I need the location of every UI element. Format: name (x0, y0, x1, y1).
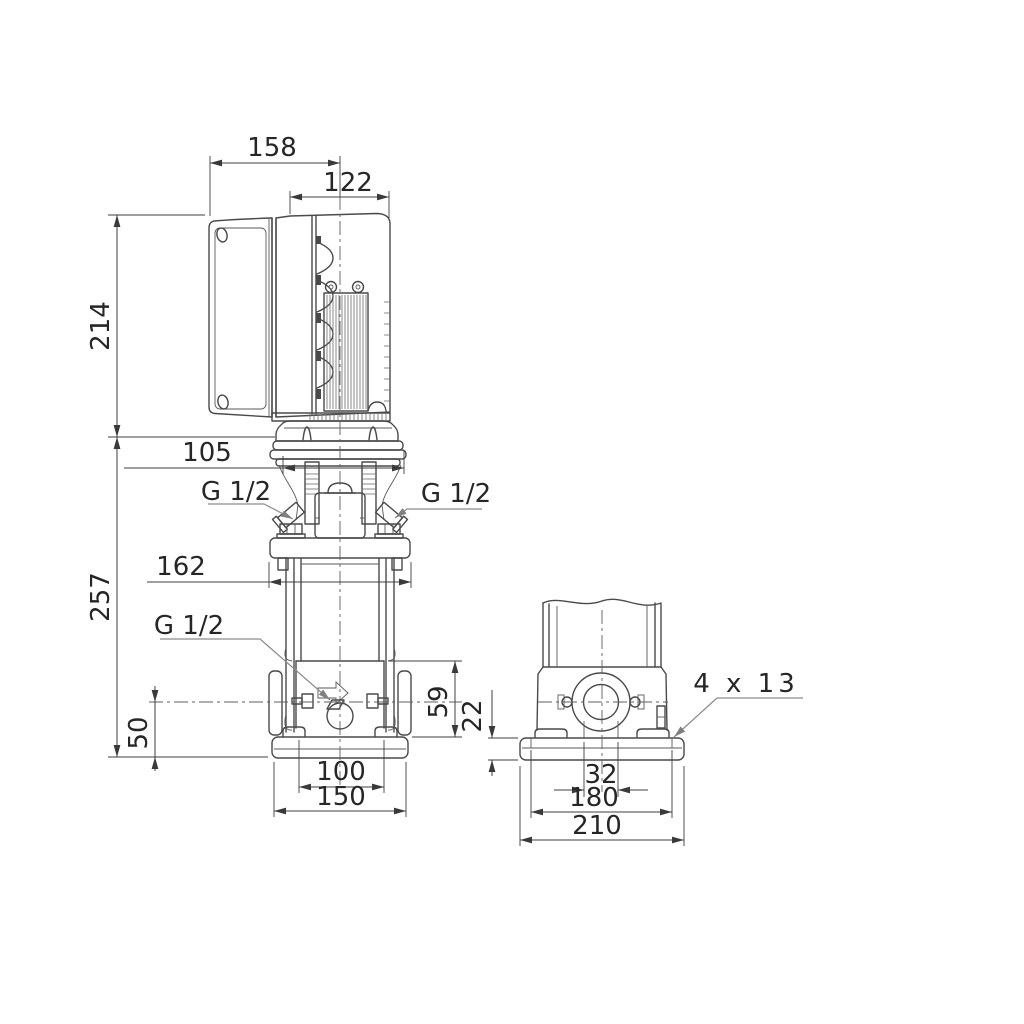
side-clip (657, 706, 665, 728)
staybolt-nut-left (277, 524, 305, 538)
plug-right-label: G 1/2 (421, 479, 491, 509)
dimension-50: 50 (124, 686, 155, 771)
dim-label-180: 180 (569, 783, 619, 813)
heatsink-fins (324, 293, 368, 411)
pump-dimensional-drawing-page: 158 122 214 257 105 162 50 (0, 0, 1024, 1024)
motor-rib-ticks (384, 302, 390, 401)
discharge-port-flange (398, 671, 411, 735)
dimension-122: 122 (290, 168, 389, 218)
priming-plug-right (374, 501, 407, 533)
dim-label-257: 257 (86, 572, 116, 622)
dim-label-122: 122 (323, 168, 373, 198)
drain-callout: G 1/2 (154, 611, 330, 700)
dim-label-150: 150 (316, 782, 366, 812)
gauge-plug-right (367, 694, 388, 708)
bolt-holes-label: 4 x 13 (693, 669, 799, 699)
staybolt-nut-right (375, 524, 403, 538)
stool-clip-icon (369, 427, 377, 440)
stool-clip-icon (303, 427, 311, 440)
dim-label-59: 59 (424, 685, 454, 718)
dimension-158: 158 (210, 133, 340, 216)
break-line (543, 599, 661, 605)
motor-stool (270, 421, 406, 466)
dim-label-158: 158 (247, 133, 297, 163)
dim-label-105: 105 (182, 438, 232, 468)
cable-entry-arc (368, 402, 386, 411)
motor-body (272, 214, 390, 422)
dim-label-214: 214 (86, 301, 116, 351)
dimension-214: 214 (86, 215, 275, 437)
dim-label-162: 162 (156, 552, 206, 582)
staybolt-threads (305, 474, 376, 494)
gauge-plug-left (292, 694, 313, 708)
dim-label-22: 22 (458, 699, 488, 732)
dim-label-50: 50 (124, 716, 154, 749)
control-box (209, 218, 276, 417)
dim-label-210: 210 (572, 811, 622, 841)
plug-callout-left: G 1/2 (201, 477, 293, 519)
bolt-holes-callout: 4 x 13 (674, 669, 803, 737)
drain-label: G 1/2 (154, 611, 224, 641)
suction-port-flange (269, 671, 282, 735)
dimensional-drawing: 158 122 214 257 105 162 50 (0, 0, 1024, 1024)
plug-callout-right: G 1/2 (395, 479, 491, 518)
dimension-22: 22 (458, 690, 518, 776)
plug-left-label: G 1/2 (201, 477, 271, 507)
